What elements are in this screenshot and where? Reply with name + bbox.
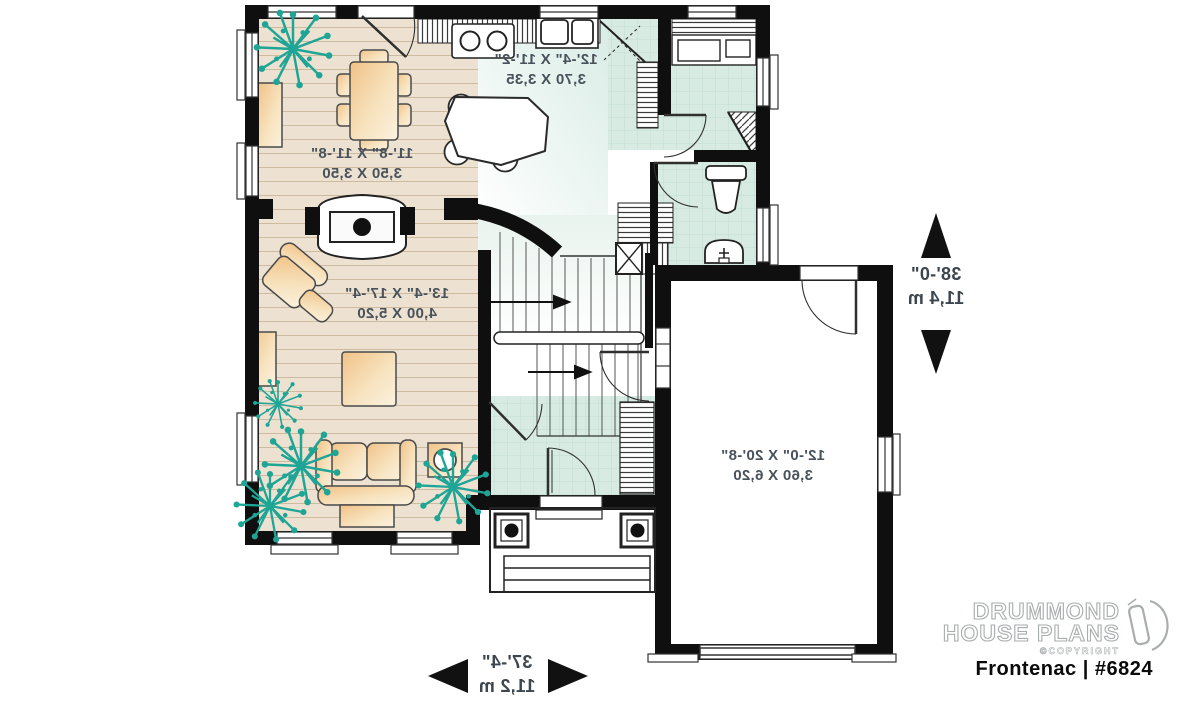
company-name-line2: HOUSE PLANS (905, 622, 1120, 644)
front-stoop (536, 510, 602, 519)
stair-railing (494, 332, 644, 344)
kitchen-imperial: 12'-4" X 11'-2" (494, 50, 597, 70)
arrow-right-icon (548, 659, 588, 693)
floor-plan-page: 12'-4" X 11'-2" 3,70 X 3,35 11'-8" X 11'… (0, 0, 1200, 711)
coffee-table (342, 352, 396, 406)
living-metric: 4,00 X 5,20 (345, 304, 449, 324)
living-imperial: 13'-4" X 17'-4" (345, 284, 449, 304)
dining-imperial: 11'-8" X 11'-8" (311, 144, 414, 164)
garage-door (700, 648, 855, 655)
sideboard (258, 83, 282, 147)
porch-column (621, 514, 654, 547)
foyer-closet (620, 402, 654, 494)
living-size-label: 13'-4" X 17'-4" 4,00 X 5,20 (345, 284, 449, 324)
garage-size-label: 12'-0" X 20'-8" 3,60 X 6,20 (721, 446, 825, 486)
width-imperial: 37'-4" (479, 650, 536, 674)
porch (490, 508, 655, 592)
arrow-down-icon (921, 330, 951, 374)
utility-chase (616, 203, 673, 274)
garage-entry-opening (800, 266, 858, 280)
width-metric: 11,2 m (479, 674, 536, 698)
sink-icon (705, 240, 743, 263)
kitchen-size-label: 12'-4" X 11'-2" 3,70 X 3,35 (494, 50, 597, 90)
garage-metric: 3,60 X 6,20 (721, 466, 825, 486)
drummond-logo-icon (1126, 597, 1180, 655)
kitchen-metric: 3,70 X 3,35 (494, 70, 597, 90)
dining-table (350, 62, 398, 140)
company-logo-text: DRUMMOND HOUSE PLANS ©COPYRIGHT (905, 600, 1120, 657)
depth-imperial: 38'-0" (908, 262, 965, 286)
dining-size-label: 11'-8" X 11'-8" 3,50 X 3,50 (311, 144, 414, 184)
plan-name-label: Frontenac | #6824 (918, 658, 1153, 681)
copyright-text: ©COPYRIGHT (905, 646, 1120, 657)
side-counter (637, 62, 658, 128)
overall-width-label: 37'-4" 11,2 m (479, 650, 536, 698)
sofa-table (340, 505, 394, 527)
depth-metric: 11,4 m (908, 286, 965, 310)
arrow-up-icon (921, 213, 951, 258)
overall-depth-label: 38'-0" 11,4 m (908, 262, 965, 310)
company-name-line1: DRUMMOND (905, 600, 1120, 622)
porch-steps (504, 556, 650, 592)
porch-column (495, 514, 528, 547)
arrow-left-icon (428, 659, 468, 693)
dining-metric: 3,50 X 3,50 (311, 164, 414, 184)
garage-imperial: 12'-0" X 20'-8" (721, 446, 825, 466)
fireplace (305, 195, 415, 259)
patio-door-opening (358, 6, 414, 18)
